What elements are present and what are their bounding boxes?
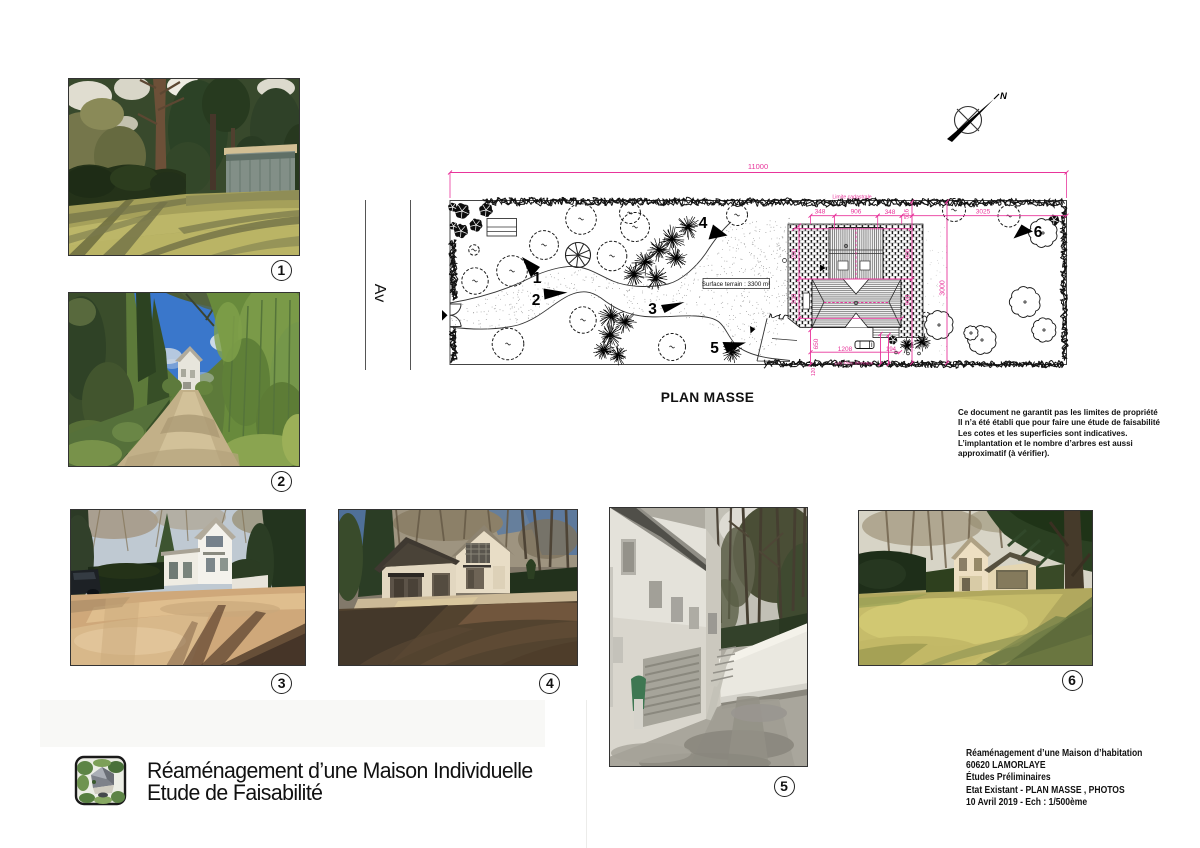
svg-text:194: 194 — [886, 347, 897, 353]
svg-text:348: 348 — [885, 209, 896, 216]
svg-text:200: 200 — [791, 248, 798, 259]
svg-text:650: 650 — [813, 338, 820, 349]
svg-text:1: 1 — [533, 270, 542, 287]
svg-text:3: 3 — [648, 301, 657, 318]
svg-text:906: 906 — [851, 209, 862, 216]
svg-text:3000: 3000 — [940, 280, 947, 296]
svg-text:Surface terrain : 3300 m²: Surface terrain : 3300 m² — [702, 281, 770, 288]
svg-text:5: 5 — [710, 340, 719, 357]
svg-text:3025: 3025 — [976, 209, 991, 216]
svg-text:120: 120 — [811, 368, 817, 377]
svg-text:Limite cadastrale: Limite cadastrale — [832, 195, 871, 201]
svg-text:906: 906 — [905, 248, 912, 259]
svg-text:6: 6 — [1034, 224, 1043, 241]
svg-text:N: N — [1000, 91, 1008, 102]
svg-text:Les Pres Moreaux: Les Pres Moreaux — [835, 361, 875, 367]
svg-text:516: 516 — [905, 208, 911, 219]
svg-text:900: 900 — [905, 294, 912, 305]
svg-text:200: 200 — [791, 293, 798, 304]
svg-text:4: 4 — [699, 215, 708, 232]
svg-text:2: 2 — [532, 292, 541, 309]
svg-text:1208: 1208 — [838, 346, 853, 353]
svg-text:348: 348 — [815, 209, 826, 216]
svg-text:11000: 11000 — [748, 162, 768, 171]
